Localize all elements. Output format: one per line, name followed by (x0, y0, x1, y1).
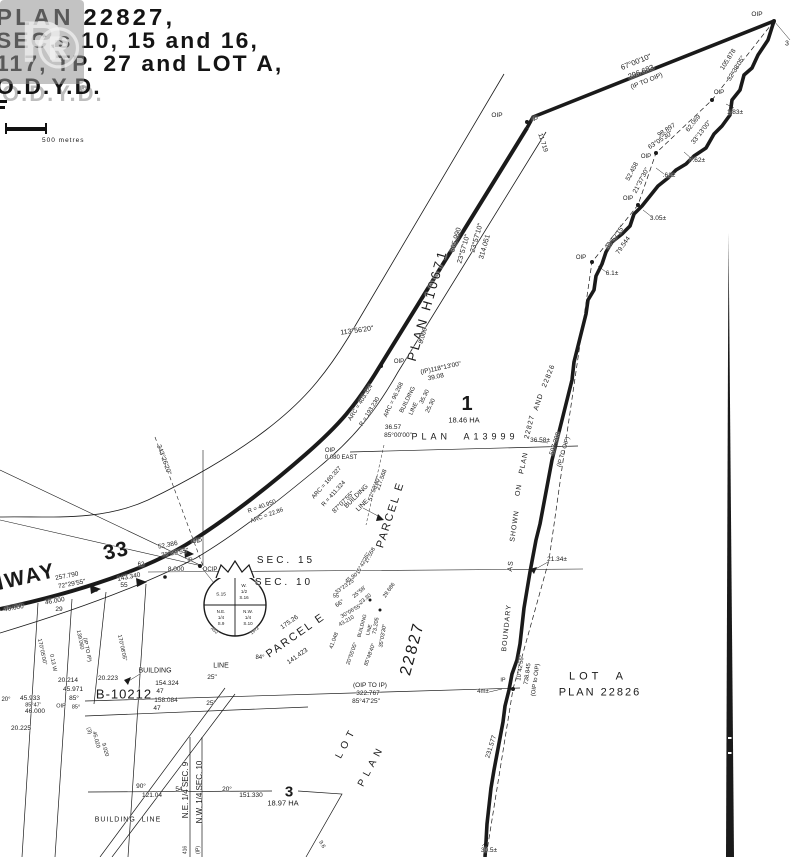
annotation-label: LINE (356, 499, 371, 514)
annotation-label: 47 (156, 689, 163, 696)
annotation-label: S.9 (218, 622, 225, 627)
sec9-quarter: N.E. 1/4 SEC. 9 (182, 762, 190, 818)
annotation-layer: OIP367°00'10"296.683(IP TO OIP)OIPIP11.7… (0, 0, 791, 857)
annotation-label: (IP) (197, 846, 202, 854)
annotation-label: 1972 (250, 626, 261, 636)
annotation-label: 25.30 (425, 398, 437, 414)
annotation-label: N.E. (217, 610, 226, 615)
annotation-label: 85° (69, 696, 79, 703)
annotation-label: 0.13 W (47, 654, 56, 672)
annotation-label: OIP (623, 196, 633, 202)
annotation-label: 85°00'00" (384, 433, 412, 440)
annotation-label: 343°26'20" (155, 444, 172, 476)
plan-b10212: B-10212 (96, 688, 152, 701)
plan-word: PLAN (357, 743, 387, 788)
annotation-label: OIP (491, 113, 502, 120)
annotation-label: OIP (751, 12, 762, 19)
annotation-label: 46.000 (4, 604, 25, 614)
highway-name: HWAY (0, 560, 58, 596)
annotation-label: 84° (255, 655, 264, 661)
annotation-label: 8.000 (168, 567, 184, 574)
annotation-label: BUILDING (138, 668, 171, 675)
scale-label: 500 metres (42, 137, 85, 144)
annotation-label: 54 (175, 787, 182, 794)
plan-a13999: PLAN A13999 (411, 433, 518, 442)
annotation-label: 29 (55, 607, 62, 614)
annotation-label: 85° (72, 705, 80, 711)
annotation-label: 151.330 (239, 793, 263, 800)
annotation-label: 6.1± (606, 271, 619, 278)
annotation-label: 55 (333, 594, 339, 600)
plan-22827-label: 22827 (398, 621, 428, 678)
building-line-bottom: BUILDING LINE (95, 817, 162, 824)
annotation-label: 72°29'55" (161, 548, 190, 560)
annotation-label: S.15 (216, 594, 226, 599)
annotation-label: IP (500, 678, 505, 684)
sec-10: SEC. 10 (255, 578, 313, 588)
annotation-label: 20.223 (98, 676, 118, 683)
annotation-label: 141.423 (287, 648, 310, 667)
annotation-label: 45.020 (90, 731, 100, 749)
annotation-label: 90° (136, 784, 146, 791)
annotation-label: 738.845 (524, 663, 533, 685)
annotation-label: 62 (138, 562, 145, 568)
annotation-label: 85°48'40" (364, 643, 377, 667)
sec10-quarter: N.W. 1/4 SEC. 10 (196, 761, 204, 824)
annotation-label: 154.324 (155, 681, 179, 688)
annotation-label: W. (241, 584, 246, 589)
annotation-label: 36.57 (385, 425, 401, 432)
annotation-label: OIP (325, 448, 335, 454)
registered-mark: ® (80, 84, 86, 93)
annotation-label: S.16 (239, 596, 248, 601)
annotation-label: 3 (785, 41, 789, 48)
annotation-label: 20°55'05" (346, 642, 359, 666)
annotation-label: OIP (192, 539, 202, 545)
scale-bar-tick (45, 123, 47, 134)
annotation-label: 3.05± (650, 216, 666, 223)
boundary-note: AND (533, 392, 545, 411)
annotation-label: 20.225 (11, 726, 31, 733)
annotation-label: 46.000 (25, 709, 45, 716)
annotation-label: 1/4 (245, 616, 251, 621)
annotation-label: IP (187, 558, 192, 564)
annotation-label: .61± (663, 173, 676, 180)
annotation-label: S.10 (243, 622, 252, 627)
annotation-label: 0.080 EAST (325, 455, 357, 461)
annotation-label: A52 (209, 627, 218, 636)
annotation-label: OIP (394, 359, 404, 365)
annotation-label: 25" (206, 701, 216, 708)
annotation-label: 322.767 (356, 691, 380, 698)
annotation-label: 231.577 (485, 735, 498, 759)
watermark-registered-mark: ® (37, 15, 80, 82)
annotation-label: 170°08'05" (116, 634, 127, 661)
annotation-label: 20.214 (58, 678, 78, 685)
lot-a-plan: PLAN 22826 (559, 688, 641, 699)
clipped-edge-fragment (0, 100, 7, 103)
survey-plan-page: OIP367°00'10"296.683(IP TO OIP)OIPIP11.7… (0, 0, 791, 857)
annotation-label: (OIP to OIP) (531, 663, 542, 696)
annotation-label: OCIP (203, 567, 218, 573)
annotation-label: 4m± (477, 689, 489, 695)
annotation-label: OIP (56, 704, 65, 710)
annotation-label: 170°05'00" (36, 638, 47, 665)
annotation-label: 11.719 (536, 133, 548, 153)
annotation-label: 45.971 (63, 687, 83, 694)
annotation-label: 9.6 (317, 840, 326, 849)
highway-number: 33 (101, 538, 130, 564)
annotation-label: 1/2 (241, 590, 247, 595)
annotation-label: 1.83± (727, 110, 743, 117)
annotation-label: 41.048 (330, 632, 341, 650)
lot-3: 3 (285, 785, 293, 800)
annotation-label: 55 (120, 583, 127, 590)
annotation-label: 158.084 (154, 698, 178, 705)
scale-bar-tick (5, 123, 7, 134)
annotation-label: 416 (184, 846, 189, 854)
annotation-label: (3) (84, 727, 91, 735)
annotation-label: 20° (222, 787, 232, 794)
lot-1-area: 18.46 HA (448, 416, 479, 424)
annotation-label: (IP TO IP) (81, 637, 91, 662)
annotation-label: 36.58± (530, 438, 550, 445)
sec-15: SEC. 15 (257, 556, 315, 566)
annotation-label: (OIP TO IP) (353, 683, 387, 690)
boundary-note: SHOWN (509, 510, 520, 543)
watermark-realtor-logo: R ® (0, 0, 84, 84)
lot-1: 1 (461, 394, 472, 414)
annotation-label: LINE (213, 663, 229, 670)
annotation-label: 35°03'30" (379, 624, 389, 648)
annotation-label: 30.5± (481, 848, 497, 855)
lot-word: LOT (334, 725, 359, 760)
scale-bar (6, 127, 46, 131)
boundary-note: ON (514, 483, 523, 497)
annotation-label: OIP (714, 90, 724, 96)
annotation-label: IP (532, 117, 538, 123)
annotation-label: 25" (207, 675, 217, 682)
annotation-label: OIP (641, 154, 651, 160)
annotation-label: 39.08 (427, 373, 444, 383)
annotation-label: LINE (408, 402, 419, 417)
annotation-label: 113°56'20" (340, 325, 374, 337)
annotation-label: OIP (576, 255, 586, 261)
annotation-label: 85°47'25" (352, 699, 380, 706)
road-name: PLAN H10671 (405, 247, 450, 362)
annotation-label: 1/4 (218, 616, 224, 621)
annotation-label: 21.34± (547, 557, 567, 564)
annotation-label: 20° (1, 697, 10, 703)
annotation-label: 9.020 (100, 743, 109, 758)
boundary-note: PLAN (518, 451, 529, 474)
boundary-note: BOUNDARY (501, 604, 513, 652)
annotation-label: 121.04 (142, 793, 162, 800)
annotation-label: 47 (153, 706, 160, 713)
lot-a: LOT A (569, 672, 627, 683)
lot-3-area: 18.97 HA (267, 799, 298, 807)
boundary-note: AS (507, 560, 515, 572)
annotation-label: 8.000 (419, 327, 430, 344)
annotation-label: 29.686 (383, 583, 397, 600)
annotation-label: N.W. (243, 610, 253, 615)
annotation-label: 7.62± (689, 158, 705, 165)
clipped-edge-fragment (0, 106, 5, 109)
annotation-label: 66° (335, 599, 346, 609)
boundary-note: 22826 (541, 363, 557, 388)
